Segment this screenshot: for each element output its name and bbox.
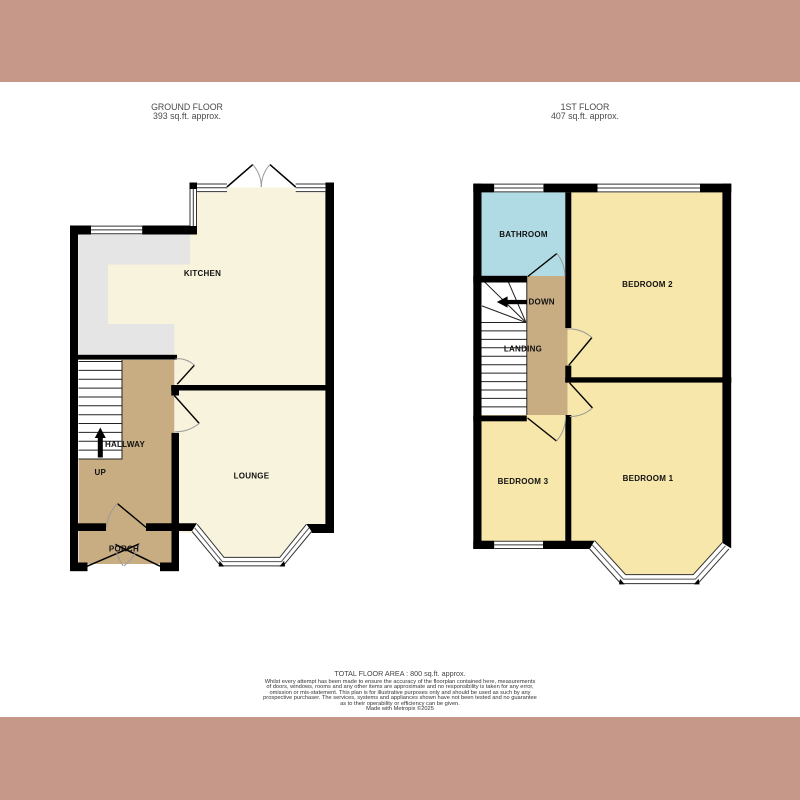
svg-text:LOUNGE: LOUNGE bbox=[234, 472, 270, 481]
svg-text:KITCHEN: KITCHEN bbox=[184, 269, 221, 278]
svg-text:BEDROOM 2: BEDROOM 2 bbox=[622, 280, 673, 289]
svg-text:BEDROOM 1: BEDROOM 1 bbox=[623, 474, 674, 483]
svg-text:LANDING: LANDING bbox=[504, 345, 542, 354]
svg-text:DOWN: DOWN bbox=[529, 298, 555, 307]
svg-text:HALLWAY: HALLWAY bbox=[105, 440, 146, 449]
svg-text:UP: UP bbox=[94, 468, 106, 477]
svg-text:PORCH: PORCH bbox=[109, 545, 139, 554]
svg-text:BATHROOM: BATHROOM bbox=[499, 230, 548, 239]
svg-text:BEDROOM 3: BEDROOM 3 bbox=[498, 477, 549, 486]
